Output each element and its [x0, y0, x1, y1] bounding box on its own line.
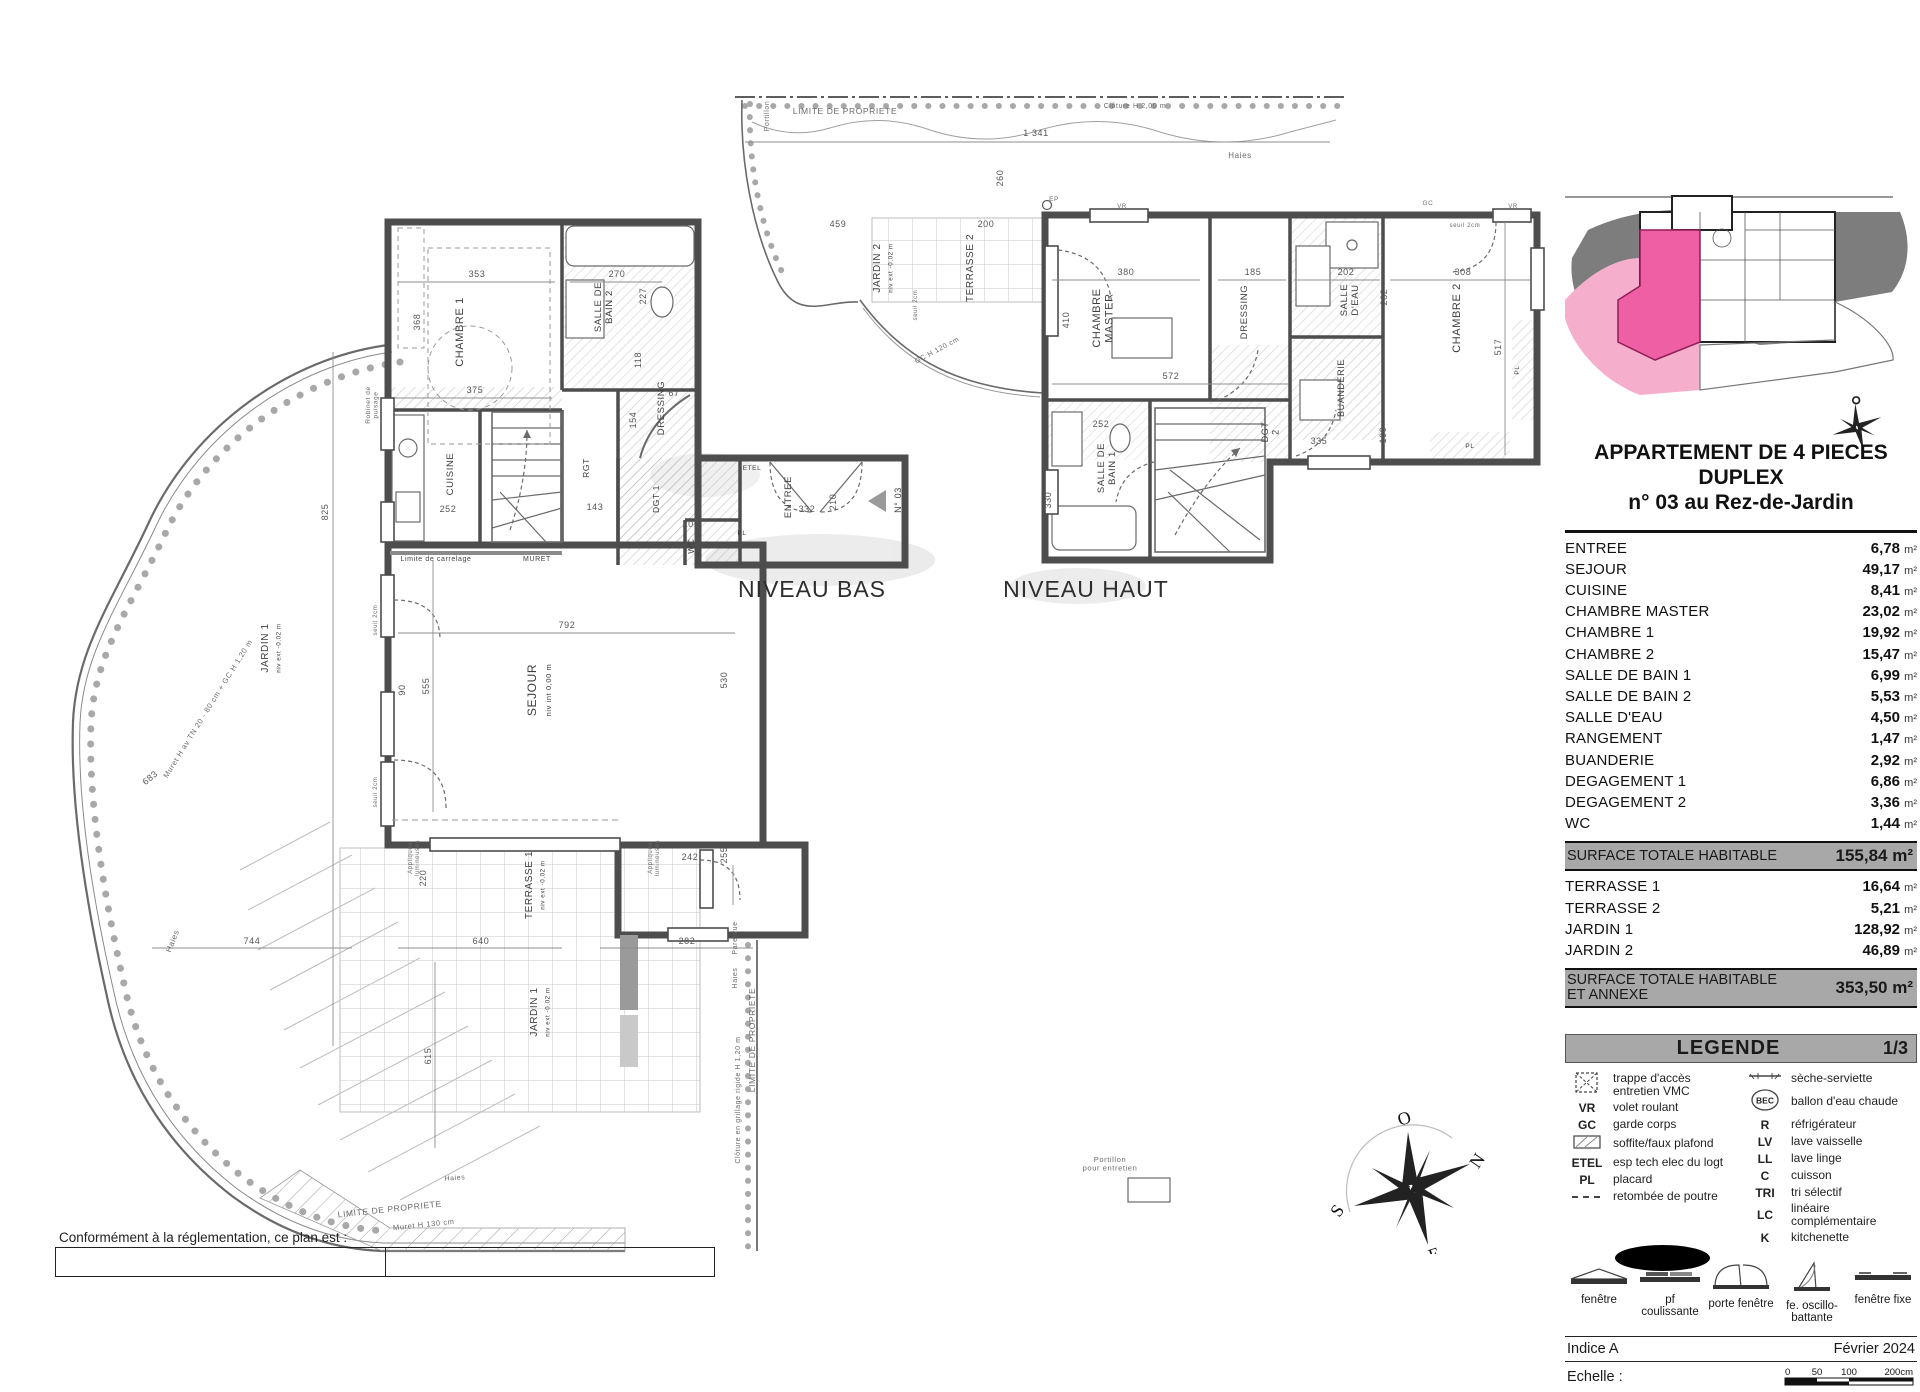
legend-abbr: ETEL — [1565, 1156, 1609, 1170]
room-name: JARDIN 2 — [1565, 941, 1633, 962]
total-habitable-value: 155,84 m² — [1836, 846, 1914, 866]
date-label: Février 2024 — [1834, 1341, 1915, 1357]
scale-tick: 0 — [1785, 1367, 1790, 1378]
window-symbol: fenêtre fixe — [1849, 1261, 1917, 1324]
legend-label: garde corps — [1609, 1118, 1676, 1131]
room-area: 6,78 m² — [1871, 539, 1917, 560]
dimension-label: 555 — [421, 678, 431, 695]
dimension-label: 744 — [244, 936, 261, 946]
room-area: 46,89 m² — [1862, 941, 1917, 962]
room-area: 6,86 m² — [1871, 772, 1917, 793]
annotation-label: GC H 120 cm — [914, 336, 961, 365]
legend-item: PLplacard — [1565, 1172, 1739, 1187]
legend-item: sèche-serviette — [1743, 1071, 1917, 1086]
legend-label: placard — [1609, 1173, 1652, 1186]
room-label: SEJOURniv int 0,00 m — [525, 664, 553, 717]
window-symbol: fenêtre — [1565, 1261, 1633, 1324]
legend-label: réfrigérateur — [1787, 1118, 1856, 1131]
room-label: MURET — [523, 556, 551, 563]
annotation-label: seuil 2cm — [913, 290, 919, 321]
annex-table: TERRASSE 116,64 m²TERRASSE 25,21 m²JARDI… — [1565, 877, 1917, 962]
compass-e: E — [1426, 1243, 1443, 1254]
surface-row: SALLE DE BAIN 16,99 m² — [1565, 666, 1917, 687]
legend-right-column: sèche-servietteBECballon d'eau chaudeRré… — [1743, 1071, 1917, 1247]
legend-abbr: C — [1743, 1169, 1787, 1183]
annotation-label: Appliqueslumineuses — [408, 840, 421, 876]
annotation-label: Clôture en grillage rigide H 1,20 m — [735, 1036, 742, 1163]
dimension-label: 202 — [1338, 267, 1355, 277]
annex-row: JARDIN 1128,92 m² — [1565, 920, 1917, 941]
seche-icon — [1743, 1071, 1787, 1086]
room-name: TERRASSE 1 — [1565, 877, 1660, 898]
room-label: CHAMBRE 2 — [1451, 283, 1463, 353]
dimension-label: 1 341 — [1023, 128, 1049, 138]
dimension-label: 572 — [1163, 371, 1180, 381]
dimension-label: 154 — [628, 412, 638, 429]
room-label: WC — [686, 538, 696, 553]
legend-item: LClinéaire complémentaire — [1743, 1202, 1917, 1228]
legend-item: soffite/faux plafond — [1565, 1134, 1739, 1153]
oscillo-battante-icon — [1778, 1261, 1846, 1298]
niveau-bas-title: NIVEAU BAS — [738, 576, 886, 602]
dimension-label: 640 — [473, 936, 490, 946]
dimension-label: 200 — [978, 219, 995, 229]
scale-tick: 100 — [1841, 1367, 1857, 1378]
niveau-haut-title: NIVEAU HAUT — [1003, 576, 1169, 602]
room-area: 5,53 m² — [1871, 687, 1917, 708]
legend-item: Ccuisson — [1743, 1168, 1917, 1183]
room-label: JARDIN 1niv ext -0,02 m — [260, 623, 283, 673]
legend-abbr: LC — [1743, 1208, 1787, 1222]
dimension-label: 375 — [467, 385, 484, 395]
info-panel: APPARTEMENT DE 4 PIECES DUPLEX n° 03 au … — [1565, 440, 1917, 1392]
room-name: BUANDERIE — [1565, 751, 1654, 772]
legend-item: Rréfrigérateur — [1743, 1117, 1917, 1132]
dimension-label: 683 — [140, 768, 159, 786]
legend-label: cuisson — [1787, 1169, 1832, 1182]
dimension-label: 270 — [609, 269, 626, 279]
dimension-label: 260 — [995, 170, 1005, 187]
annotation-label: VR — [1117, 204, 1127, 210]
dimension-label: 252 — [1093, 419, 1110, 429]
legend-item: Kkitchenette — [1743, 1230, 1917, 1245]
window-symbol: porte fenêtre — [1707, 1261, 1775, 1324]
dimension-label: 202 — [683, 519, 700, 529]
legend-item: retombée de poutre — [1565, 1189, 1739, 1204]
annotation-label: LIMITE DE PROPRIETE — [793, 106, 897, 116]
legend-abbr: LV — [1743, 1135, 1787, 1149]
room-name: WC — [1565, 814, 1590, 835]
legend-left-column: trappe d'accèsentretien VMCVRvolet roula… — [1565, 1071, 1739, 1247]
dimension-label: 118 — [633, 352, 643, 368]
annotation-label: VR — [1508, 204, 1518, 210]
window-symbol: fe. oscillo-battante — [1778, 1261, 1846, 1324]
soffite-icon — [1565, 1134, 1609, 1153]
annotation-label: LIMITE DE PROPRIETE — [747, 988, 757, 1092]
legend-label: tri sélectif — [1787, 1186, 1842, 1199]
annotation-label: seuil 2cm — [1450, 223, 1481, 229]
dimension-label: 255 — [719, 847, 729, 864]
dimension-label: 242 — [682, 852, 699, 862]
annotation-label: EP — [1049, 196, 1059, 203]
annotation-label: Haies — [1228, 151, 1251, 160]
room-area: 3,36 m² — [1871, 793, 1917, 814]
surface-row: RANGEMENT1,47 m² — [1565, 729, 1917, 750]
window-symbol-label: fe. oscillo-battante — [1778, 1300, 1846, 1324]
room-label: CUISINE — [445, 453, 456, 496]
legend-label: lave linge — [1787, 1152, 1842, 1165]
annotation-label: Appliqueslumineuses — [648, 840, 661, 876]
room-label: SALLED'EAU — [1339, 284, 1361, 317]
annex-row: TERRASSE 116,64 m² — [1565, 877, 1917, 898]
porte-fenetre-icon — [1707, 1261, 1775, 1296]
legend-item: LLlave linge — [1743, 1151, 1917, 1166]
indice-row: Indice A Février 2024 — [1565, 1336, 1917, 1361]
dimension-label: 282 — [1379, 289, 1389, 306]
legend-item: LVlave vaisselle — [1743, 1134, 1917, 1149]
surface-row: WC1,44 m² — [1565, 814, 1917, 835]
room-name: ENTREE — [1565, 539, 1627, 560]
room-label: PL — [737, 530, 746, 537]
room-area: 6,99 m² — [1871, 666, 1917, 687]
surface-row: DEGAGEMENT 16,86 m² — [1565, 772, 1917, 793]
compass-rose: O N S E — [1326, 1107, 1489, 1254]
window-symbol-label: fenêtre fixe — [1849, 1294, 1917, 1306]
dimension-label: 335 — [1311, 436, 1328, 446]
window-symbol-label: fenêtre — [1565, 1294, 1633, 1306]
legend-label: ballon d'eau chaude — [1787, 1095, 1898, 1108]
legend-label: soffite/faux plafond — [1609, 1137, 1714, 1150]
annex-row: JARDIN 246,89 m² — [1565, 941, 1917, 962]
room-label: CHAMBRE 1 — [454, 297, 466, 367]
legend-label: lave vaisselle — [1787, 1135, 1862, 1148]
annotation-label: Haies — [164, 929, 181, 954]
room-label: ENTREE — [783, 476, 794, 518]
annotation-label: Portillonpour entretien — [1083, 1155, 1138, 1173]
legend-item: GCgarde corps — [1565, 1117, 1739, 1132]
dimension-label: 459 — [830, 219, 847, 229]
dimension-label: 67 — [668, 388, 679, 398]
window-symbol-label: porte fenêtre — [1707, 1298, 1775, 1310]
legend-abbr: GC — [1565, 1118, 1609, 1132]
annotation-label: seuil 2cm — [373, 605, 379, 636]
room-name: SALLE D'EAU — [1565, 708, 1663, 729]
annex-row: TERRASSE 25,21 m² — [1565, 899, 1917, 920]
room-name: SALLE DE BAIN 1 — [1565, 666, 1691, 687]
dimension-label: 210 — [828, 494, 838, 511]
indice-label: Indice A — [1567, 1341, 1619, 1357]
svg-text:BEC: BEC — [1756, 1096, 1774, 1106]
dimension-label: 517 — [1493, 339, 1503, 356]
compass-s: S — [1326, 1201, 1348, 1221]
conformity-box — [55, 1247, 715, 1277]
legend-window-icons: fenêtrepf coulissanteporte fenêtrefe. os… — [1565, 1261, 1917, 1324]
annotation-label: Muret H av TN 20 - 80 cm + GC H 1,20 m — [161, 638, 254, 780]
legend-abbr: TRI — [1743, 1186, 1787, 1200]
room-label: RGT — [581, 458, 591, 478]
fenetre-fixe-icon — [1849, 1261, 1917, 1292]
dimension-label: 308 — [1455, 267, 1472, 277]
legend-label: esp tech elec du logt — [1609, 1156, 1723, 1169]
room-area: 49,17 m² — [1862, 560, 1917, 581]
total-annexe-value: 353,50 m² — [1836, 978, 1914, 998]
room-label: BUANDERIE — [1336, 359, 1346, 417]
legend-abbr: K — [1743, 1231, 1787, 1245]
key-plan — [1565, 196, 1908, 451]
echelle-row: Echelle : 050100200cm — [1565, 1361, 1917, 1392]
dimension-label: 227 — [638, 288, 648, 305]
room-label: TERRASSE 2 — [965, 234, 976, 302]
surface-table: ENTREE6,78 m²SEJOUR49,17 m²CUISINE8,41 m… — [1565, 530, 1917, 836]
surface-row: CHAMBRE MASTER23,02 m² — [1565, 602, 1917, 623]
room-name: SEJOUR — [1565, 560, 1627, 581]
legend-item: trappe d'accèsentretien VMC — [1565, 1071, 1739, 1098]
room-area: 1,47 m² — [1871, 729, 1917, 750]
surface-row: SALLE D'EAU4,50 m² — [1565, 708, 1917, 729]
surface-row: SALLE DE BAIN 25,53 m² — [1565, 687, 1917, 708]
total-habitable-label: SURFACE TOTALE HABITABLE — [1567, 849, 1777, 864]
echelle-label: Echelle : — [1567, 1369, 1623, 1385]
annotation-label: Haies — [444, 1174, 465, 1182]
room-name: TERRASSE 2 — [1565, 899, 1660, 920]
legend: LEGENDE 1/3 trappe d'accèsentretien VMCV… — [1565, 1034, 1917, 1324]
compass-n: N — [1465, 1149, 1489, 1171]
room-name: CHAMBRE MASTER — [1565, 602, 1709, 623]
legend-item: TRItri sélectif — [1743, 1185, 1917, 1200]
room-label: N° 03 — [893, 487, 903, 513]
scale-bar: 050100200cm — [1783, 1366, 1915, 1388]
room-area: 5,21 m² — [1871, 899, 1917, 920]
room-label: DRESSING — [656, 381, 667, 435]
dimension-label: 100 — [1378, 427, 1388, 444]
surface-row: BUANDERIE2,92 m² — [1565, 751, 1917, 772]
total-habitable-bar: SURFACE TOTALE HABITABLE 155,84 m² — [1565, 841, 1917, 871]
legend-label: kitchenette — [1787, 1231, 1849, 1244]
legend-label: trappe d'accèsentretien VMC — [1609, 1072, 1691, 1098]
dimension-label: 332 — [799, 504, 816, 514]
total-annexe-label: SURFACE TOTALE HABITABLE ET ANNEXE — [1567, 973, 1777, 1003]
conformity-text: Conformément à la réglementation, ce pla… — [59, 1230, 715, 1245]
room-label: ETEL — [743, 465, 762, 472]
room-name: CUISINE — [1565, 581, 1627, 602]
dimension-label: 380 — [1118, 267, 1135, 277]
surface-row: ENTREE6,78 m² — [1565, 539, 1917, 560]
unit-door-marker — [868, 490, 886, 512]
room-name: CHAMBRE 1 — [1565, 623, 1654, 644]
dimension-label: 185 — [1245, 267, 1262, 277]
dimension-label: 792 — [559, 620, 576, 630]
surface-row: DEGAGEMENT 23,36 m² — [1565, 793, 1917, 814]
dimension-label: 825 — [320, 504, 330, 521]
legend-abbr: VR — [1565, 1101, 1609, 1115]
dimension-label: 252 — [440, 504, 457, 514]
room-label: DGT 1 — [651, 485, 661, 513]
annotation-label: Clôture H 2,00 m — [1104, 103, 1167, 110]
legend-item: ETELesp tech elec du logt — [1565, 1155, 1739, 1170]
legend-label: volet roulant — [1609, 1101, 1678, 1114]
annotation-label: Pare-vue — [732, 921, 739, 954]
room-area: 2,92 m² — [1871, 751, 1917, 772]
room-area: 128,92 m² — [1854, 920, 1917, 941]
surface-row: CHAMBRE 215,47 m² — [1565, 645, 1917, 666]
room-label: CHAMBREMASTER — [1091, 288, 1116, 347]
annotation-label: Portillon — [764, 101, 771, 132]
surface-row: CHAMBRE 119,92 m² — [1565, 623, 1917, 644]
room-label: DRESSING — [1239, 285, 1250, 339]
room-label: PL — [1465, 443, 1474, 450]
window-symbol-label: pf coulissante — [1636, 1294, 1704, 1318]
legend-label: retombée de poutre — [1609, 1190, 1718, 1203]
room-area: 8,41 m² — [1871, 581, 1917, 602]
room-name: JARDIN 1 — [1565, 920, 1633, 941]
legend-header: LEGENDE 1/3 — [1565, 1034, 1917, 1063]
annotation-label: seuil 2cm — [373, 777, 379, 808]
annotation-label: Haies — [732, 968, 739, 989]
room-name: DEGAGEMENT 2 — [1565, 793, 1686, 814]
room-area: 1,44 m² — [1871, 814, 1917, 835]
dimension-label: 615 — [423, 1048, 433, 1065]
dimension-label: 282 — [679, 936, 696, 946]
legend-label: linéaire complémentaire — [1787, 1202, 1917, 1228]
room-area: 16,64 m² — [1862, 877, 1917, 898]
legend-abbr: R — [1743, 1118, 1787, 1132]
annotation-label: Robinet depuisage — [365, 386, 379, 423]
annotation-label: LIMITE DE PROPRIETE — [337, 1199, 442, 1220]
room-label: PL — [1514, 365, 1521, 374]
dimension-label: 90 — [397, 684, 407, 695]
legend-label: sèche-serviette — [1787, 1072, 1872, 1085]
room-name: RANGEMENT — [1565, 729, 1663, 750]
room-name: SALLE DE BAIN 2 — [1565, 687, 1691, 708]
title-line2: n° 03 au Rez-de-Jardin — [1565, 490, 1917, 515]
surface-row: SEJOUR49,17 m² — [1565, 560, 1917, 581]
dimension-label: 143 — [587, 502, 604, 512]
legend-abbr: LL — [1743, 1152, 1787, 1166]
trappe-icon — [1565, 1071, 1609, 1098]
room-name: DEGAGEMENT 1 — [1565, 772, 1686, 793]
room-label: Limite de carrelage — [401, 556, 472, 563]
legend-title: LEGENDE — [1574, 1037, 1883, 1060]
scale-tick: 200cm — [1884, 1367, 1913, 1378]
legend-abbr: PL — [1565, 1173, 1609, 1187]
dimension-label: 353 — [469, 269, 486, 279]
niveau-bas-plan — [340, 222, 905, 1112]
room-name: CHAMBRE 2 — [1565, 645, 1654, 666]
room-area: 19,92 m² — [1862, 623, 1917, 644]
dimension-label: 410 — [1061, 312, 1071, 329]
dimension-label: 330 — [1043, 492, 1053, 509]
legend-page: 1/3 — [1883, 1038, 1908, 1059]
fenetre-icon — [1565, 1261, 1633, 1292]
title-line1: APPARTEMENT DE 4 PIECES DUPLEX — [1565, 440, 1917, 490]
logo-oval — [1615, 1245, 1710, 1271]
bec-icon: BEC — [1743, 1088, 1787, 1115]
room-area: 15,47 m² — [1862, 645, 1917, 666]
room-area: 23,02 m² — [1862, 602, 1917, 623]
legend-item: VRvolet roulant — [1565, 1100, 1739, 1115]
room-area: 4,50 m² — [1871, 708, 1917, 729]
poutre-icon — [1565, 1190, 1609, 1204]
dimension-label: 368 — [412, 314, 422, 331]
page-title: APPARTEMENT DE 4 PIECES DUPLEX n° 03 au … — [1565, 440, 1917, 516]
surface-row: CUISINE8,41 m² — [1565, 581, 1917, 602]
legend-item: BECballon d'eau chaude — [1743, 1088, 1917, 1115]
dimension-label: 530 — [719, 672, 729, 689]
annotation-label: GC — [1423, 200, 1434, 207]
scale-tick: 50 — [1812, 1367, 1823, 1378]
total-annexe-bar: SURFACE TOTALE HABITABLE ET ANNEXE 353,5… — [1565, 968, 1917, 1008]
